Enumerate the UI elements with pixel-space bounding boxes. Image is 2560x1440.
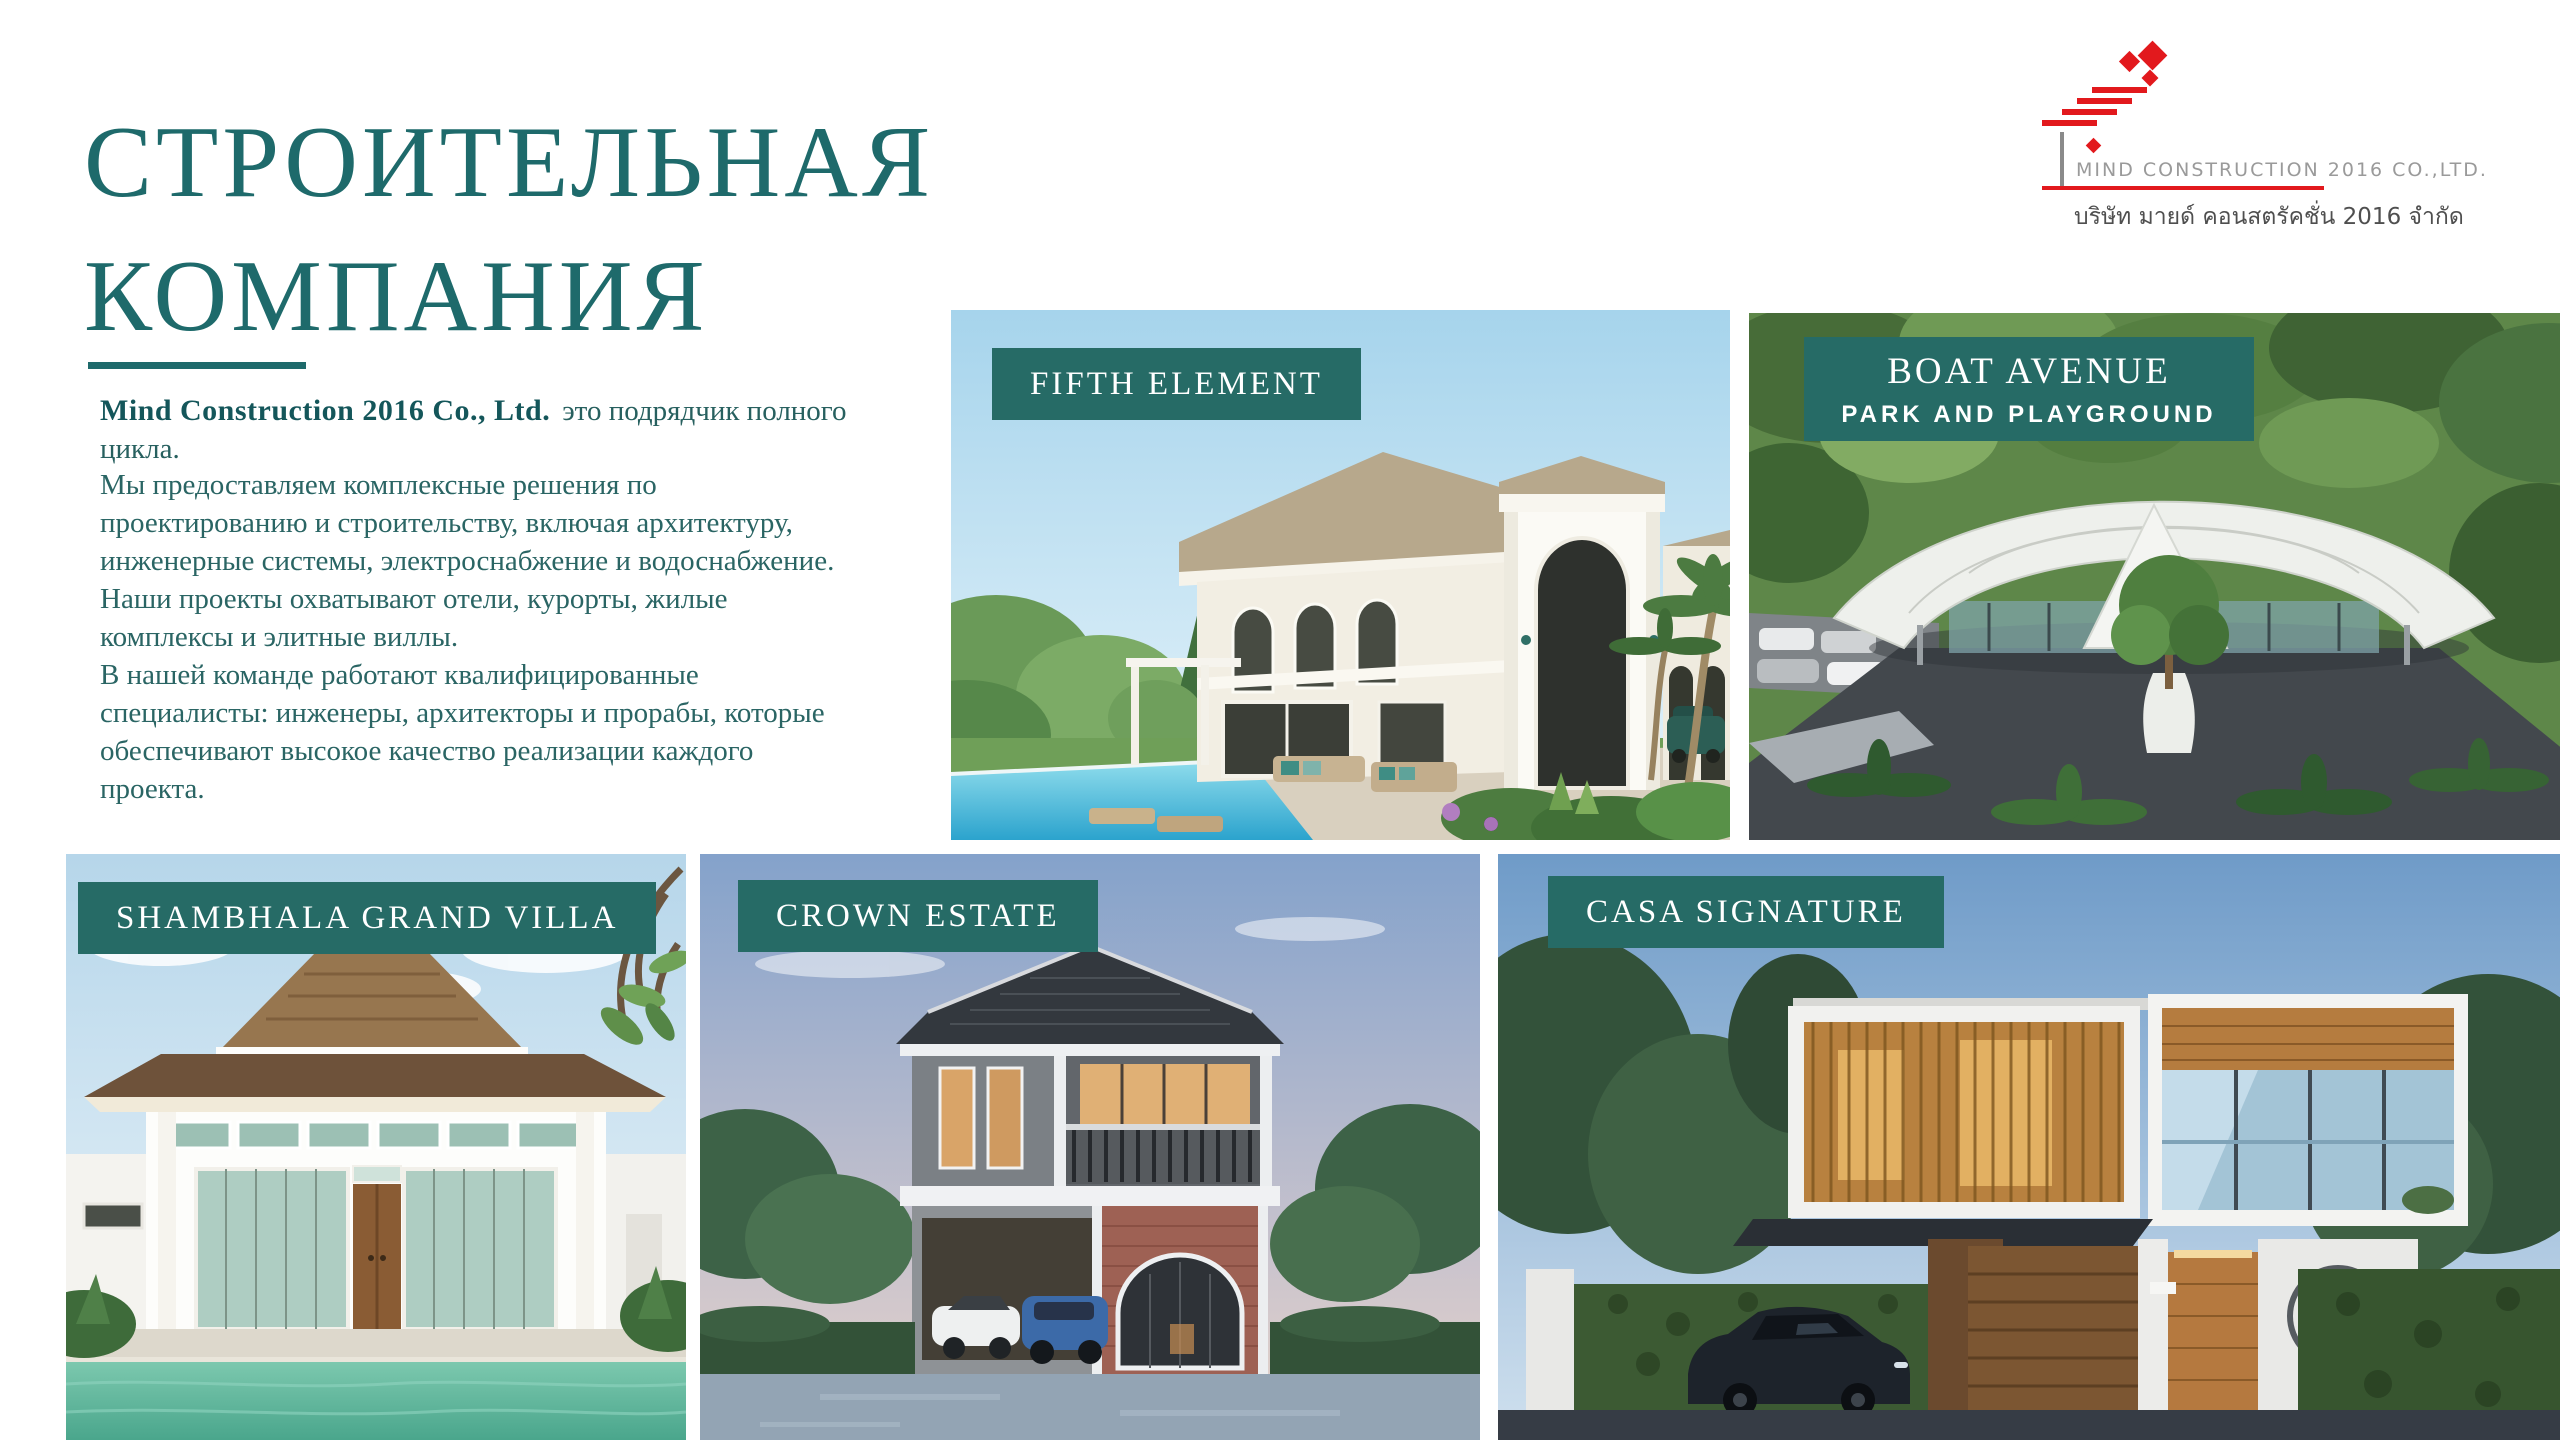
title-line-1: СТРОИТЕЛЬНАЯ xyxy=(84,96,934,230)
project-label: CASA SIGNATURE xyxy=(1586,894,1906,931)
project-photo-shambhala: SHAMBHALA GRAND VILLA xyxy=(66,854,686,1440)
project-badge-crown-estate: CROWN ESTATE xyxy=(738,880,1098,952)
project-photo-casa-signature: CASA SIGNATURE xyxy=(1498,854,2560,1440)
company-logo: MIND CONSTRUCTION 2016 CO.,LTD. บริษัท ม… xyxy=(2030,40,2530,250)
title-line-2: КОМПАНИЯ xyxy=(84,230,934,364)
project-label: SHAMBHALA GRAND VILLA xyxy=(116,900,618,937)
project-badge-casa-signature: CASA SIGNATURE xyxy=(1548,876,1944,948)
driveway xyxy=(1498,1410,2560,1440)
presentation-slide: СТРОИТЕЛЬНАЯ КОМПАНИЯ MIND CONSTRUCTION … xyxy=(0,0,2560,1440)
team-paragraph: В нашей команде работают квалифицированн… xyxy=(100,656,860,808)
project-badge-boat-avenue: BOAT AVENUE PARK AND PLAYGROUND xyxy=(1804,337,2254,441)
project-badge-fifth-element: FIFTH ELEMENT xyxy=(992,348,1361,420)
project-badge-shambhala: SHAMBHALA GRAND VILLA xyxy=(78,882,656,954)
project-label: BOAT AVENUE xyxy=(1887,350,2170,393)
project-photo-crown-estate: CROWN ESTATE xyxy=(700,854,1480,1440)
page-title: СТРОИТЕЛЬНАЯ КОМПАНИЯ xyxy=(84,96,934,364)
logo-company-name: MIND CONSTRUCTION 2016 CO.,LTD. xyxy=(2076,159,2488,181)
logo-company-name-thai: บริษัท มายด์ คอนสตรัคชั่น 2016 จำกัด xyxy=(2074,200,2464,230)
title-underline xyxy=(88,362,306,369)
project-sublabel: PARK AND PLAYGROUND xyxy=(1841,401,2216,429)
services-paragraph: Мы предоставляем комплексные решения по … xyxy=(100,466,860,656)
driveway xyxy=(700,1374,1480,1440)
swimming-pool xyxy=(66,1362,686,1440)
project-label: FIFTH ELEMENT xyxy=(1030,366,1323,403)
intro-company-name: Mind Construction 2016 Co., Ltd. xyxy=(100,394,550,427)
project-photo-fifth-element: FIFTH ELEMENT xyxy=(951,310,1730,840)
intro-paragraph: Mind Construction 2016 Co., Ltd.это подр… xyxy=(100,392,890,468)
project-label: CROWN ESTATE xyxy=(776,898,1060,935)
project-photo-boat-avenue: BOAT AVENUE PARK AND PLAYGROUND xyxy=(1749,313,2560,840)
pool-deck xyxy=(66,1329,686,1359)
